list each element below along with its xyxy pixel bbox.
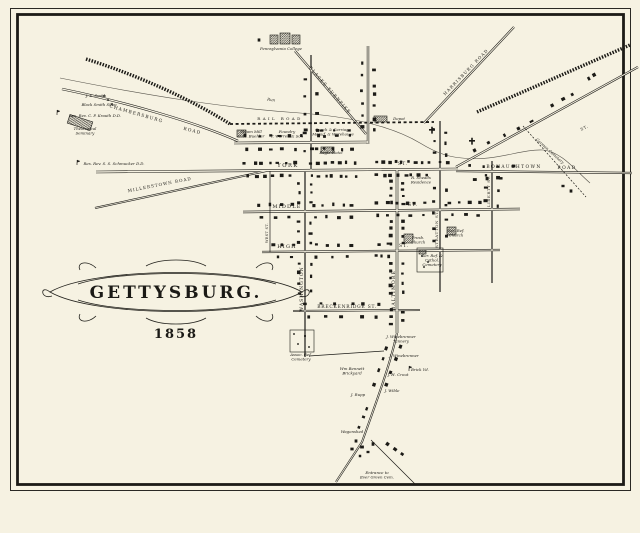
place-label: German Cemetery (535, 137, 566, 165)
building (298, 263, 301, 265)
building (388, 174, 392, 177)
building (389, 195, 392, 197)
building (483, 165, 485, 168)
street-label: RAIL ROAD (257, 116, 302, 121)
building (377, 368, 380, 372)
building (362, 415, 366, 418)
place-label: Res. Rev. S. S. Schmucker D.D. (82, 161, 144, 166)
street-label: MILLERSTOWN ROAD (127, 176, 192, 193)
building (382, 357, 385, 361)
building (361, 74, 363, 76)
street-label: ST. (399, 243, 409, 249)
building (259, 162, 263, 165)
building (260, 216, 264, 219)
building (561, 185, 564, 187)
building (365, 407, 368, 411)
building (314, 216, 317, 218)
building (349, 244, 353, 247)
building (550, 103, 554, 107)
building (324, 315, 327, 318)
building (355, 175, 357, 178)
building (304, 128, 308, 131)
building (439, 161, 442, 163)
building (401, 273, 404, 275)
building (277, 256, 279, 259)
building (389, 180, 393, 183)
building (389, 323, 393, 325)
building (332, 203, 334, 207)
street-label: LIBERTY ST. (486, 175, 491, 207)
building (289, 174, 292, 176)
building (497, 205, 499, 208)
building (254, 161, 257, 164)
place-label: J. Rupp (350, 392, 366, 397)
building (421, 161, 423, 164)
building (387, 255, 390, 258)
building (373, 104, 376, 106)
building (445, 153, 447, 157)
building (570, 93, 574, 97)
public-building (374, 116, 387, 122)
building (402, 282, 404, 285)
building (326, 244, 329, 247)
street-label: HARRISBURG ROAD (442, 48, 489, 97)
building (339, 315, 343, 318)
building (311, 147, 315, 150)
building (375, 173, 379, 176)
building (433, 140, 435, 142)
flag-marker (57, 110, 60, 115)
building (360, 315, 364, 318)
building (297, 241, 300, 244)
building (361, 61, 363, 64)
building (397, 173, 400, 176)
building (390, 187, 393, 190)
building (375, 315, 378, 318)
building (303, 150, 305, 152)
building (354, 161, 357, 164)
building (377, 243, 380, 246)
building (337, 244, 340, 247)
building (350, 148, 354, 151)
building (271, 174, 274, 177)
building (310, 263, 312, 266)
building (529, 120, 534, 124)
building (476, 214, 479, 217)
building (401, 235, 404, 238)
building (309, 222, 311, 225)
building (499, 177, 503, 179)
building (290, 256, 293, 258)
building (401, 220, 405, 223)
building (497, 189, 499, 192)
place-label: Depot (392, 116, 405, 121)
place-label: FoundryT. Warren & Son (271, 129, 304, 139)
building (309, 162, 312, 164)
place-label: Wm BennettBrickyard (340, 366, 365, 376)
building (390, 201, 393, 205)
place-label: J. Winebrenner (388, 353, 420, 358)
place-label: J. Wible (384, 388, 401, 393)
street-label: ST. (579, 124, 589, 132)
place-label: TheologicalSeminary (74, 126, 98, 136)
building (309, 232, 313, 234)
street-label: ST. (398, 161, 408, 167)
building (389, 262, 393, 265)
building (255, 175, 259, 178)
building (360, 446, 364, 449)
lane-german-cemetery-lane (523, 126, 586, 197)
building (350, 216, 354, 219)
building (377, 303, 380, 306)
building (325, 215, 327, 218)
place-label: J. S. Smith (85, 93, 107, 98)
street-label: ROAD (183, 127, 202, 136)
building (414, 161, 418, 164)
place-label: J. WinebrennerTannery (385, 334, 417, 344)
building (269, 203, 271, 207)
gettysburg-map-page: RAIL ROADYORKST.MIDDLEST.HIGHST.BRECKENR… (0, 0, 640, 533)
building (397, 214, 400, 217)
building (592, 73, 597, 78)
street-label: MIDDLE (272, 204, 301, 210)
building (309, 201, 312, 203)
building (402, 195, 405, 197)
street-label: BONAUGHTOWN (486, 165, 541, 170)
building (372, 383, 376, 387)
building (361, 102, 364, 104)
building (317, 175, 321, 177)
building (315, 92, 318, 95)
building (380, 254, 382, 257)
street-label: BLACKS TURNPIKE (308, 65, 352, 114)
building (324, 162, 327, 165)
building (398, 344, 402, 348)
building (331, 256, 333, 258)
place-label: Run (266, 96, 276, 102)
building (258, 148, 262, 151)
public-building (292, 35, 300, 44)
frame-inner-border (18, 15, 624, 485)
building (587, 76, 591, 80)
building (395, 202, 398, 205)
building (246, 174, 249, 177)
building (367, 451, 370, 453)
building (345, 175, 347, 177)
building (310, 275, 312, 278)
building (294, 148, 297, 151)
church-cross-icon (429, 127, 435, 134)
building (310, 290, 312, 293)
street-label: YORK (276, 163, 298, 169)
street-label: HIGH (277, 244, 297, 250)
public-building (270, 35, 278, 44)
place-label: Assoc. Ref.Cemetery (289, 352, 312, 362)
building (297, 220, 301, 222)
building (401, 188, 404, 190)
building (432, 200, 435, 203)
building (400, 452, 404, 456)
building (401, 262, 404, 264)
street-label: ST. (408, 202, 418, 208)
building (269, 162, 271, 164)
building (433, 151, 437, 153)
building (464, 213, 468, 216)
road-fill-chambersburg-st (234, 142, 368, 143)
building (503, 133, 507, 137)
building (315, 112, 319, 115)
plot-mark (297, 343, 299, 345)
building (315, 147, 318, 150)
building (330, 174, 333, 178)
building (401, 182, 404, 185)
building (373, 92, 376, 95)
building (280, 147, 284, 150)
building (376, 214, 379, 218)
building (445, 219, 448, 221)
building (350, 204, 354, 207)
street-label: ROAD (557, 166, 576, 171)
building (359, 455, 361, 457)
place-label: Brick Yd. (410, 367, 429, 372)
building (355, 439, 358, 442)
street-label: BRECKENRIDGE ST. (317, 305, 377, 310)
building (561, 97, 566, 102)
building (271, 243, 275, 246)
building (473, 178, 477, 181)
building (263, 175, 267, 178)
building (337, 216, 341, 219)
building (274, 216, 278, 219)
plot-mark (304, 335, 306, 337)
street-label: WEST ST. (265, 223, 269, 243)
building (312, 204, 315, 207)
building (446, 161, 450, 164)
building (386, 214, 389, 216)
building (325, 175, 327, 178)
map-title: GETTYSBURG. (52, 283, 300, 303)
building (389, 234, 393, 238)
building (373, 85, 376, 88)
road-cemetery-lane-west (309, 351, 384, 356)
building (307, 315, 310, 318)
building (346, 255, 349, 258)
building (422, 214, 424, 216)
building (401, 311, 405, 314)
building (375, 161, 378, 163)
building (258, 38, 261, 41)
building (297, 182, 300, 185)
building (570, 189, 573, 192)
building (387, 243, 390, 245)
building (245, 148, 248, 151)
building (386, 201, 390, 204)
building (297, 230, 300, 232)
building (468, 201, 472, 204)
building (298, 191, 300, 194)
railroad-center (230, 122, 434, 124)
building (388, 161, 392, 164)
road-fill-harrisburg-road (424, 27, 514, 123)
building (478, 201, 481, 204)
building (389, 315, 393, 318)
place-label: Black Smith Shop (80, 102, 117, 107)
street-label: STRATTON ST. (434, 210, 439, 248)
building (405, 174, 409, 176)
building (402, 291, 404, 294)
building (516, 126, 520, 130)
building (315, 243, 318, 245)
plot-mark (308, 346, 310, 348)
building (340, 175, 343, 178)
place-label: Res. Rev. C. P. Krauth D.D. (68, 113, 121, 118)
building (360, 125, 364, 128)
place-label: R. SheadsResidence (410, 175, 432, 185)
building (350, 448, 353, 451)
place-label: J. H. Crout (387, 372, 409, 377)
building (316, 162, 320, 165)
building (343, 204, 345, 207)
building (445, 204, 448, 206)
building (423, 202, 426, 204)
building (280, 174, 284, 177)
building (401, 227, 404, 230)
building (269, 148, 273, 150)
building (242, 162, 245, 165)
flag-marker (77, 160, 80, 165)
map-year: 1858 (52, 327, 300, 342)
building (287, 216, 290, 219)
building (310, 183, 312, 185)
building (373, 128, 376, 131)
building (428, 161, 431, 164)
place-label: Coach & CarriageManuf. & Warehouse (311, 127, 354, 137)
building (310, 242, 313, 245)
building (451, 213, 453, 216)
building (375, 201, 379, 204)
building (257, 204, 260, 207)
place-label: Steam MillC. H. Buehler (238, 129, 266, 139)
building (401, 203, 405, 205)
building (304, 78, 307, 80)
building (372, 69, 376, 72)
building (375, 254, 378, 256)
building (393, 447, 398, 452)
gettysburg-map: RAIL ROADYORKST.MIDDLEST.HIGHST.BRECKENR… (0, 0, 640, 533)
building (444, 142, 446, 146)
railroad-northeast (477, 45, 630, 112)
place-label: Entrance toEver Green Cem. (359, 470, 394, 480)
building (345, 161, 347, 164)
building (384, 382, 388, 386)
place-label: Wagonshed (341, 429, 364, 434)
building (372, 442, 375, 446)
building (304, 113, 307, 116)
place-label: Presb.Church (411, 235, 426, 245)
building (448, 202, 452, 204)
building (458, 201, 460, 203)
plot-mark (107, 99, 109, 101)
building (486, 141, 490, 145)
building (390, 220, 393, 223)
public-building (280, 33, 290, 44)
building (433, 187, 436, 190)
street-label: BALTIMORE (391, 270, 397, 310)
building (321, 204, 323, 206)
building (408, 214, 412, 217)
building (360, 89, 363, 92)
road-fill-millerstown-road (95, 171, 266, 208)
building (310, 191, 312, 193)
building (385, 442, 390, 447)
church-cross-icon (469, 138, 475, 145)
building (468, 164, 471, 167)
building (472, 148, 476, 152)
building (311, 174, 313, 177)
building (401, 319, 404, 322)
place-label: Eagle Hotel (318, 150, 343, 155)
building (390, 242, 393, 245)
building (384, 346, 388, 351)
building (381, 160, 385, 164)
building (445, 188, 448, 191)
building (383, 174, 386, 177)
place-label: Ger. Ref.Church (447, 228, 465, 238)
building (444, 132, 447, 134)
building (314, 256, 317, 259)
building (331, 161, 334, 164)
building (338, 161, 342, 164)
building (361, 114, 363, 116)
building (303, 95, 306, 97)
place-label: Pennsylvania College (259, 46, 303, 51)
building (303, 132, 307, 135)
building (389, 226, 392, 229)
